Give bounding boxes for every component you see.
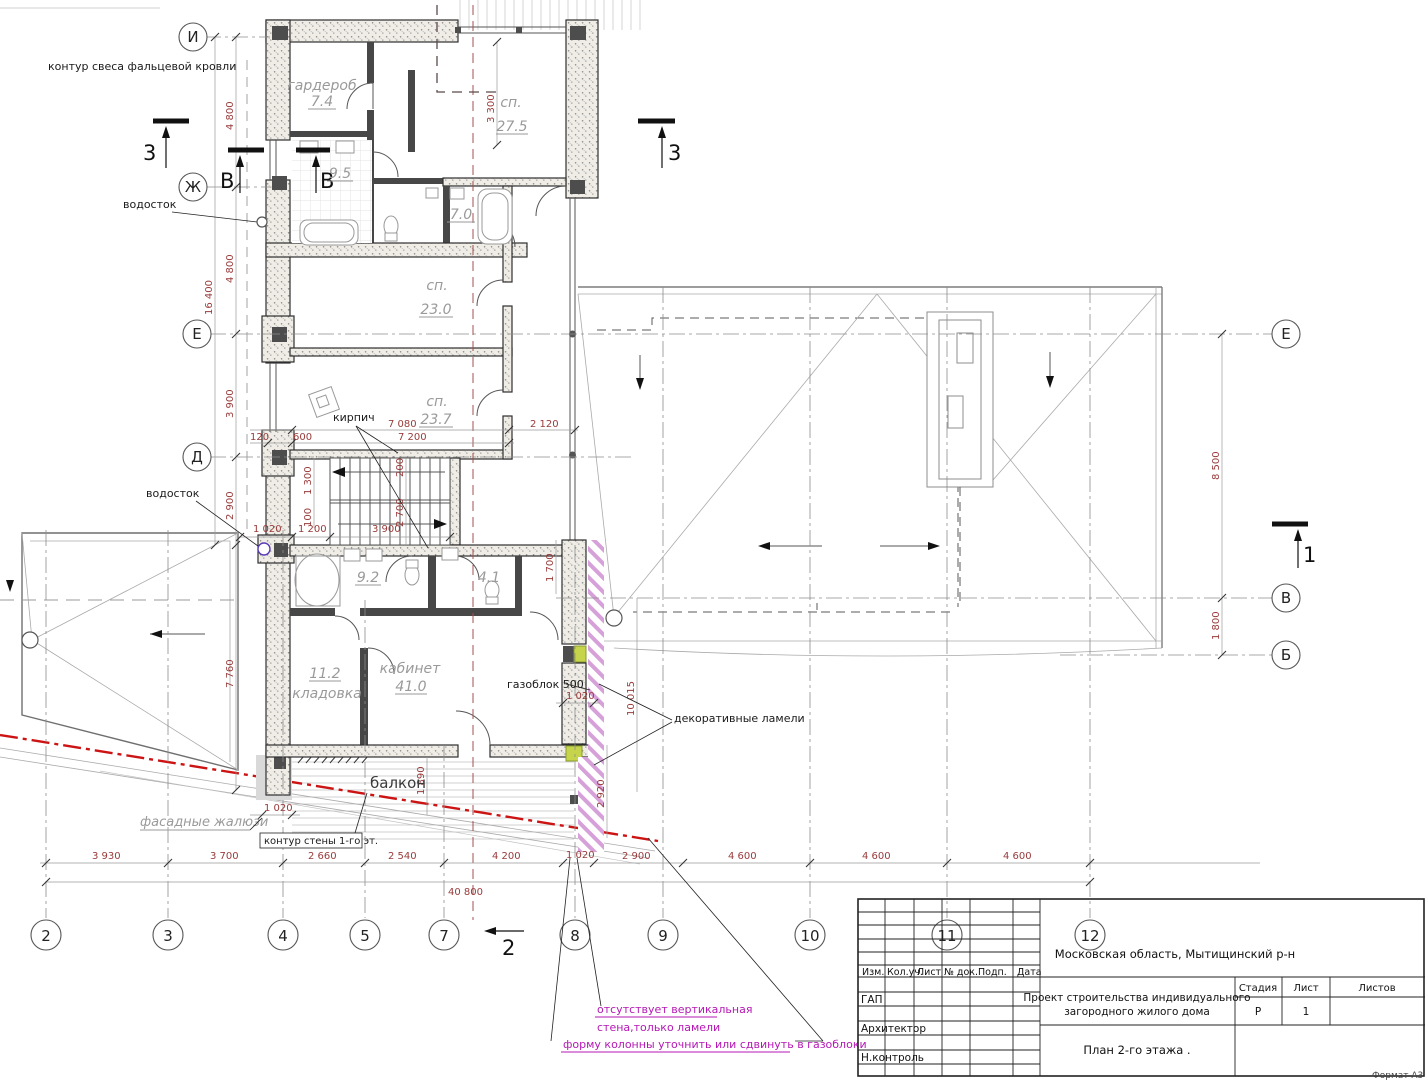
tb-plan-title: План 2-го этажа .	[1083, 1043, 1190, 1057]
room-area: 23.0	[420, 302, 451, 318]
dim-text: 120	[250, 432, 269, 443]
lamellae-label: декоративные ламели	[674, 712, 805, 725]
dim-text: 7 760	[225, 659, 236, 688]
dim-text: 3 900	[225, 389, 236, 418]
dim-text: 3 300	[486, 94, 497, 123]
section-label: 3	[143, 141, 156, 165]
tb-format: Формат А3	[1372, 1071, 1423, 1080]
tb-row-gap: ГАП	[861, 994, 882, 1006]
axis-label: Ж	[185, 178, 201, 196]
grid-label: 11	[937, 927, 956, 945]
room-area: 7.0	[450, 207, 472, 223]
dim-text: 2 540	[388, 851, 417, 862]
room-name: сп.	[426, 278, 447, 294]
dim-text: 1 300	[303, 466, 314, 495]
balcony-label: балкон	[370, 774, 426, 792]
dim-text: 4 600	[1003, 851, 1032, 862]
note-no-wall-line2: стена,только ламели	[597, 1021, 720, 1034]
dim-text: 4 600	[862, 851, 891, 862]
grid-label: 2	[41, 927, 51, 945]
room-area: 9.5	[329, 166, 351, 182]
tb-project-line2: загородного жилого дома	[1064, 1006, 1210, 1018]
grid-label: 3	[163, 927, 173, 945]
axis-label: И	[187, 28, 198, 46]
dim-text: 2 660	[308, 851, 337, 862]
dim-text: 1 020	[566, 691, 595, 702]
gas-block-label: газоблок 500	[507, 678, 584, 691]
room-area: 4.1	[478, 570, 500, 586]
dim-text: 2 920	[596, 779, 607, 808]
tb-row-control: Н.контроль	[861, 1052, 924, 1064]
tb-sheet-header: Лист	[1293, 983, 1319, 994]
left-terrace-roof	[0, 533, 238, 770]
tb-region: Московская область, Мытищинский р-н	[1055, 947, 1295, 961]
section-label: В	[220, 169, 234, 193]
tb-col-doc: № док.	[944, 967, 978, 978]
tb-sheet-value: 1	[1303, 1006, 1310, 1018]
dim-text: 1 800	[1211, 611, 1222, 640]
tb-stage-value: Р	[1255, 1006, 1261, 1018]
dim-text: 1 020	[566, 850, 595, 861]
dim-text: 4 600	[728, 851, 757, 862]
section-label: 1	[1303, 543, 1316, 567]
dim-text: 100	[303, 508, 314, 527]
grid-bubbles-bottom: 2 3 4 5 7 8 9 10 11 12	[31, 920, 1105, 950]
dim-text: 7 200	[398, 432, 427, 443]
axis-label: Е	[192, 325, 201, 343]
room-name: гардероб	[287, 78, 357, 94]
tb-sheets-header: Листов	[1358, 983, 1395, 994]
grid-label: 5	[360, 927, 370, 945]
axis-label: Е	[1281, 325, 1290, 343]
dim-text: 4 800	[225, 101, 236, 130]
room-area: 9.2	[357, 570, 379, 586]
floor-plan-drawing: И Ж Е Д Е В Б 2 3 4 5 7 8 9 10 11 12 4 8…	[0, 0, 1428, 1080]
axis-label: В	[1281, 589, 1291, 607]
grid-label: 4	[278, 927, 288, 945]
dim-text: 4 200	[492, 851, 521, 862]
dim-text: 2 900	[225, 491, 236, 520]
dim-text: 3 930	[92, 851, 121, 862]
dim-text: 200	[395, 458, 406, 477]
dim-text: 7 080	[388, 419, 417, 430]
dim-text: 1 700	[545, 553, 556, 582]
brick-label: кирпич	[333, 411, 375, 424]
room-name: кабинет	[380, 661, 442, 677]
roof-overhang-label: контур свеса фальцевой кровли	[48, 60, 236, 73]
note-no-wall-line1: отсутствует вертикальная	[597, 1003, 752, 1016]
room-area: 41.0	[395, 679, 426, 695]
dim-text: 2 700	[395, 498, 406, 527]
axis-bubbles-right: Е В Б	[1272, 320, 1300, 669]
drain-label-mid: водосток	[146, 487, 200, 500]
dim-text: 600	[293, 432, 312, 443]
tb-col-izm: Изм.	[862, 967, 884, 978]
right-wing-roof	[578, 287, 1162, 656]
grid-label: 9	[658, 927, 668, 945]
dim-text: 3 700	[210, 851, 239, 862]
room-name: сп.	[500, 95, 521, 111]
axis-bubbles-left: И Ж Е Д	[179, 23, 211, 471]
axis-label: Д	[191, 448, 203, 466]
room-area: 7.4	[311, 94, 333, 110]
dim-text: 8 500	[1211, 451, 1222, 480]
tb-row-architect: Архитектор	[861, 1023, 926, 1035]
room-name: кладовка	[292, 686, 362, 702]
tb-col-podp: Подп.	[978, 967, 1007, 978]
grid-label: 10	[800, 927, 819, 945]
section-label: 2	[502, 936, 515, 960]
tb-project-line1: Проект строительства индивидуального	[1023, 992, 1250, 1004]
floor-plan-sheet: И Ж Е Д Е В Б 2 3 4 5 7 8 9 10 11 12 4 8…	[0, 0, 1428, 1080]
note-column-shape: форму колонны уточнить или сдвинуть в га…	[563, 1038, 867, 1051]
room-area: 23.7	[420, 412, 451, 428]
dim-text: 2 120	[530, 419, 559, 430]
tb-stage-header: Стадия	[1239, 983, 1277, 994]
wall-contour-label: контур стены 1-го эт.	[264, 836, 378, 847]
dim-text: 4 800	[225, 254, 236, 283]
dim-text: 16 400	[204, 280, 215, 315]
grid-label: 8	[570, 927, 580, 945]
section-label: 3	[668, 141, 681, 165]
grid-label: 7	[439, 927, 449, 945]
grid-label: 12	[1080, 927, 1099, 945]
axis-label: Б	[1281, 646, 1291, 664]
dim-text: 1 020	[253, 524, 282, 535]
tb-col-list: Лист	[917, 967, 942, 978]
room-area: 11.2	[309, 666, 340, 682]
room-name: сп.	[426, 394, 447, 410]
dim-text: 1 020	[264, 803, 293, 814]
dim-text: 40 800	[448, 887, 483, 898]
drain-label-top: водосток	[123, 198, 177, 211]
room-area: 27.5	[496, 119, 527, 135]
tb-col-data: Дата	[1017, 967, 1042, 978]
facade-louvers-label: фасадные жалюзи	[140, 815, 268, 830]
dim-text: 2 900	[622, 851, 651, 862]
